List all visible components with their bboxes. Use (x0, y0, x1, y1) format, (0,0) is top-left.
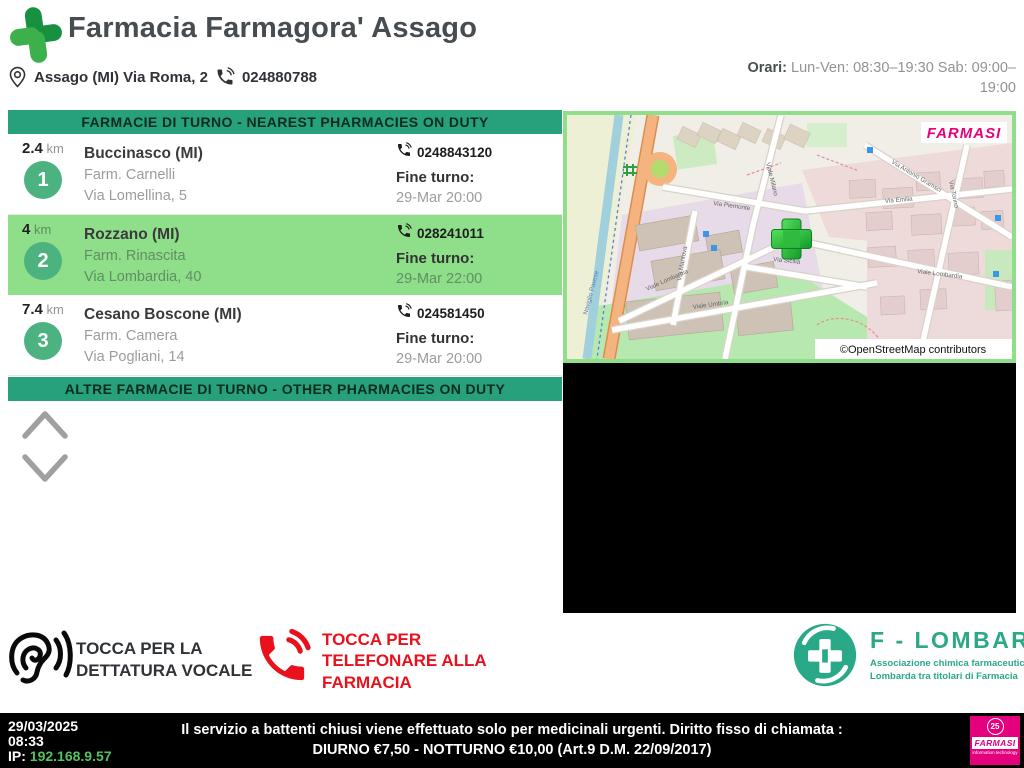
fine-turno-label: Fine turno: (396, 248, 484, 269)
pharmacy-row-2-selected[interactable]: 4 km 2 Rozzano (MI) Farm. Rinascita Via … (8, 215, 562, 295)
footer-time: 08:33 (8, 734, 112, 749)
pharmacy-name: Farm. Camera (84, 326, 242, 347)
pharmacy-cross-logo (8, 4, 64, 66)
duty-phone: 024581450 (417, 305, 485, 324)
osm-map: Via Piemonte Viale Milano Via Emilia Via… (567, 115, 1012, 359)
farmasi-subtitle: information technology (972, 750, 1017, 755)
fine-turno-label: Fine turno: (396, 328, 485, 349)
map-panel[interactable]: Via Piemonte Viale Milano Via Emilia Via… (563, 111, 1016, 363)
distance: 4 km (22, 221, 51, 238)
red-phone-icon (250, 626, 314, 690)
map-attribution: ©OpenStreetMap contributors (815, 339, 1012, 359)
map-brand-chip: FARMASI (921, 122, 1007, 143)
footer-ip: IP: 192.168.9.57 (8, 749, 112, 764)
ear-icon (6, 626, 74, 688)
pharmacy-street: Via Lomellina, 5 (84, 186, 203, 207)
call-pharmacy-button[interactable] (250, 626, 314, 693)
pharmacy-city: Rozzano (MI) (84, 224, 201, 246)
pharmacy-row-3[interactable]: 7.4 km 3 Cesano Boscone (MI) Farm. Camer… (8, 295, 562, 376)
pharmacy-street: Via Pogliani, 14 (84, 347, 242, 368)
chevron-up-icon (22, 407, 68, 439)
opening-hours: Orari: Lun-Ven: 08:30–19:30 Sab: 09:00–1… (726, 58, 1016, 99)
duty-end-time: 29-Mar 20:00 (396, 349, 485, 369)
scroll-down-button[interactable] (22, 454, 68, 489)
flombarda-name: F - LOMBARDA (870, 627, 1024, 654)
pharmacy-name: Farm. Rinascita (84, 246, 201, 267)
scroll-up-button[interactable] (22, 407, 68, 442)
flombarda-logo: F - LOMBARDA Associazione chimica farmac… (792, 622, 1024, 688)
duty-pharmacies-panel: FARMACIE DI TURNO - NEAREST PHARMACIES O… (8, 110, 562, 401)
rank-badge: 2 (24, 242, 62, 280)
phone-icon (215, 67, 235, 87)
banner-nearest-pharmacies: FARMACIE DI TURNO - NEAREST PHARMACIES O… (8, 110, 562, 134)
duty-phone: 028241011 (417, 225, 484, 244)
banner-other-pharmacies: ALTRE FARMACIE DI TURNO - OTHER PHARMACI… (8, 377, 562, 401)
pharmacy-address: Assago (MI) Via Roma, 2 (34, 69, 208, 86)
pharmacy-phone: 024880788 (242, 69, 317, 86)
pharmacy-name: Farm. Carnelli (84, 165, 203, 186)
video-panel (563, 363, 1016, 613)
footer-bar: 29/03/2025 08:33 IP: 192.168.9.57 Il ser… (0, 713, 1024, 768)
svg-text:©OpenStreetMap contributors: ©OpenStreetMap contributors (840, 344, 987, 356)
flombarda-mark-icon (792, 622, 858, 688)
fine-turno-label: Fine turno: (396, 167, 492, 188)
rank-badge: 3 (24, 322, 62, 360)
rank-badge: 1 (24, 161, 62, 199)
farmasi-badge: 25 (987, 718, 1004, 735)
farmasi-logo: 25 FARMASI information technology (970, 716, 1020, 765)
pharmacy-city: Cesano Boscone (MI) (84, 304, 242, 326)
distance: 2.4 km (22, 140, 64, 157)
hours-label: Orari: (748, 60, 788, 76)
page-title: Farmacia Farmagora' Assago (68, 12, 477, 45)
map-brand: FARMASI (927, 125, 1002, 142)
footer-datetime: 29/03/2025 08:33 IP: 192.168.9.57 (8, 719, 112, 764)
footer-notice: Il servizio a battenti chiusi viene effe… (160, 720, 864, 761)
ip-address: 192.168.9.57 (30, 748, 112, 764)
pharmacy-row-1[interactable]: 2.4 km 1 Buccinasco (MI) Farm. Carnelli … (8, 134, 562, 215)
location-pin-icon (8, 66, 27, 88)
pharmacy-street: Via Lombardia, 40 (84, 267, 201, 288)
phone-icon (396, 142, 412, 164)
voice-dictation-label[interactable]: TOCCA PER LA DETTATURA VOCALE (76, 638, 261, 682)
duty-end-time: 29-Mar 20:00 (396, 188, 492, 208)
farmasi-brand: FARMASI (972, 737, 1018, 749)
duty-phone: 0248843120 (417, 144, 492, 163)
hours-value: Lun-Ven: 08:30–19:30 Sab: 09:00–19:00 (787, 60, 1016, 96)
duty-end-time: 29-Mar 22:00 (396, 269, 484, 289)
address-row: Assago (MI) Via Roma, 2 024880788 (8, 66, 317, 88)
phone-icon (396, 223, 412, 245)
voice-dictation-button[interactable] (6, 626, 74, 691)
phone-icon (396, 303, 412, 325)
flombarda-subtitle: Associazione chimica farmaceutica Lombar… (870, 658, 1024, 683)
distance: 7.4 km (22, 301, 64, 318)
call-pharmacy-label[interactable]: TOCCA PER TELEFONARE ALLA FARMACIA (322, 629, 502, 693)
chevron-down-icon (22, 454, 68, 486)
pharmacy-city: Buccinasco (MI) (84, 143, 203, 165)
kiosk-screen: Farmacia Farmagora' Assago Assago (MI) V… (0, 0, 1024, 768)
footer-date: 29/03/2025 (8, 719, 112, 734)
